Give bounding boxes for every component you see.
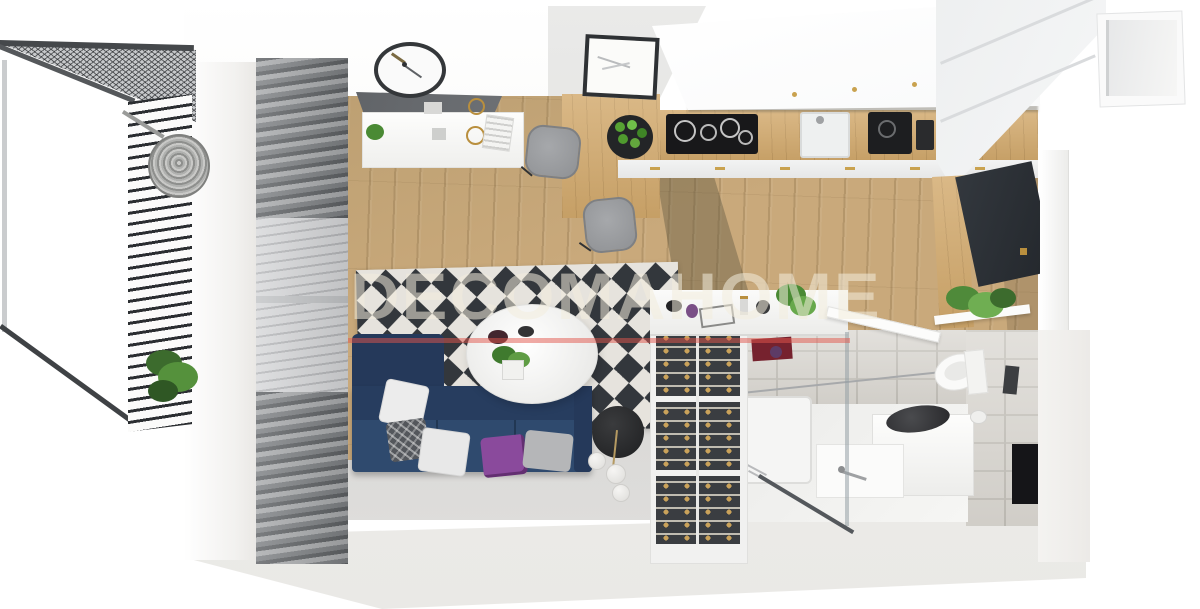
watermark: DECOMAHOME [350,258,882,334]
console-box [424,102,442,114]
flush-plate [1003,365,1020,394]
clock-center [402,62,407,67]
floorplan-render: DECOMAHOME [0,0,1200,609]
dining-chair [581,195,638,254]
fruit [618,134,628,144]
wine-rack-divider [696,328,699,544]
pillow-purple [480,434,528,478]
toilet-paper-roll [970,410,987,424]
floor-lamp-globe [612,484,630,502]
storage-box-interior [1106,20,1177,96]
console-plant [366,124,384,140]
floor-lamp-globe [606,464,626,484]
cabinet-handle [845,167,855,170]
balcony-plant-leaf [148,380,178,402]
fruit [630,138,640,148]
cabinet-handle-gold [912,82,917,87]
vanity-faucet-base [838,466,845,473]
basket-purple [770,346,782,358]
dining-chair [523,123,582,180]
cabinet-handle-gold [852,87,857,92]
cooktop-burner [720,118,740,138]
fruit [637,128,647,138]
pillow-white [417,427,471,477]
pillow-gray [522,430,574,473]
console-book [482,114,514,152]
console-tray-gold [468,98,485,115]
coffee-machine-detail [878,120,896,138]
glass-partition [845,332,849,526]
entry-shelf-plant-leaf [990,288,1016,308]
cabinet-handle [975,167,985,170]
hanging-egg-chair [148,134,210,198]
floor-lamp-base [592,406,644,458]
floor-lamp-globe [588,452,606,470]
curtain-shading [256,58,348,564]
cabinet-handle [910,167,920,170]
table-planter [502,360,524,380]
balcony-frame-left-post [2,60,7,332]
balcony-frame-bottom [0,324,131,422]
kitchen-appliance-small [916,120,934,150]
kitchen-sink [800,112,850,158]
sink-faucet [816,116,824,124]
console-box [432,128,446,140]
exterior-wall-right [1038,330,1090,562]
watermark-underline [348,338,850,343]
cooktop-burner [738,130,753,145]
vanity-basin [816,444,904,498]
cooktop-burner [700,124,717,141]
cabinet-handle [650,167,660,170]
cooktop-burner [674,120,696,142]
wall-art-frame [582,34,659,100]
cabinet-handle [780,167,790,170]
fruit [615,122,625,132]
cabinet-handle [715,167,725,170]
cabinet-handle-gold [792,92,797,97]
fruit [627,120,637,130]
wardrobe-door-handle [1020,248,1027,255]
